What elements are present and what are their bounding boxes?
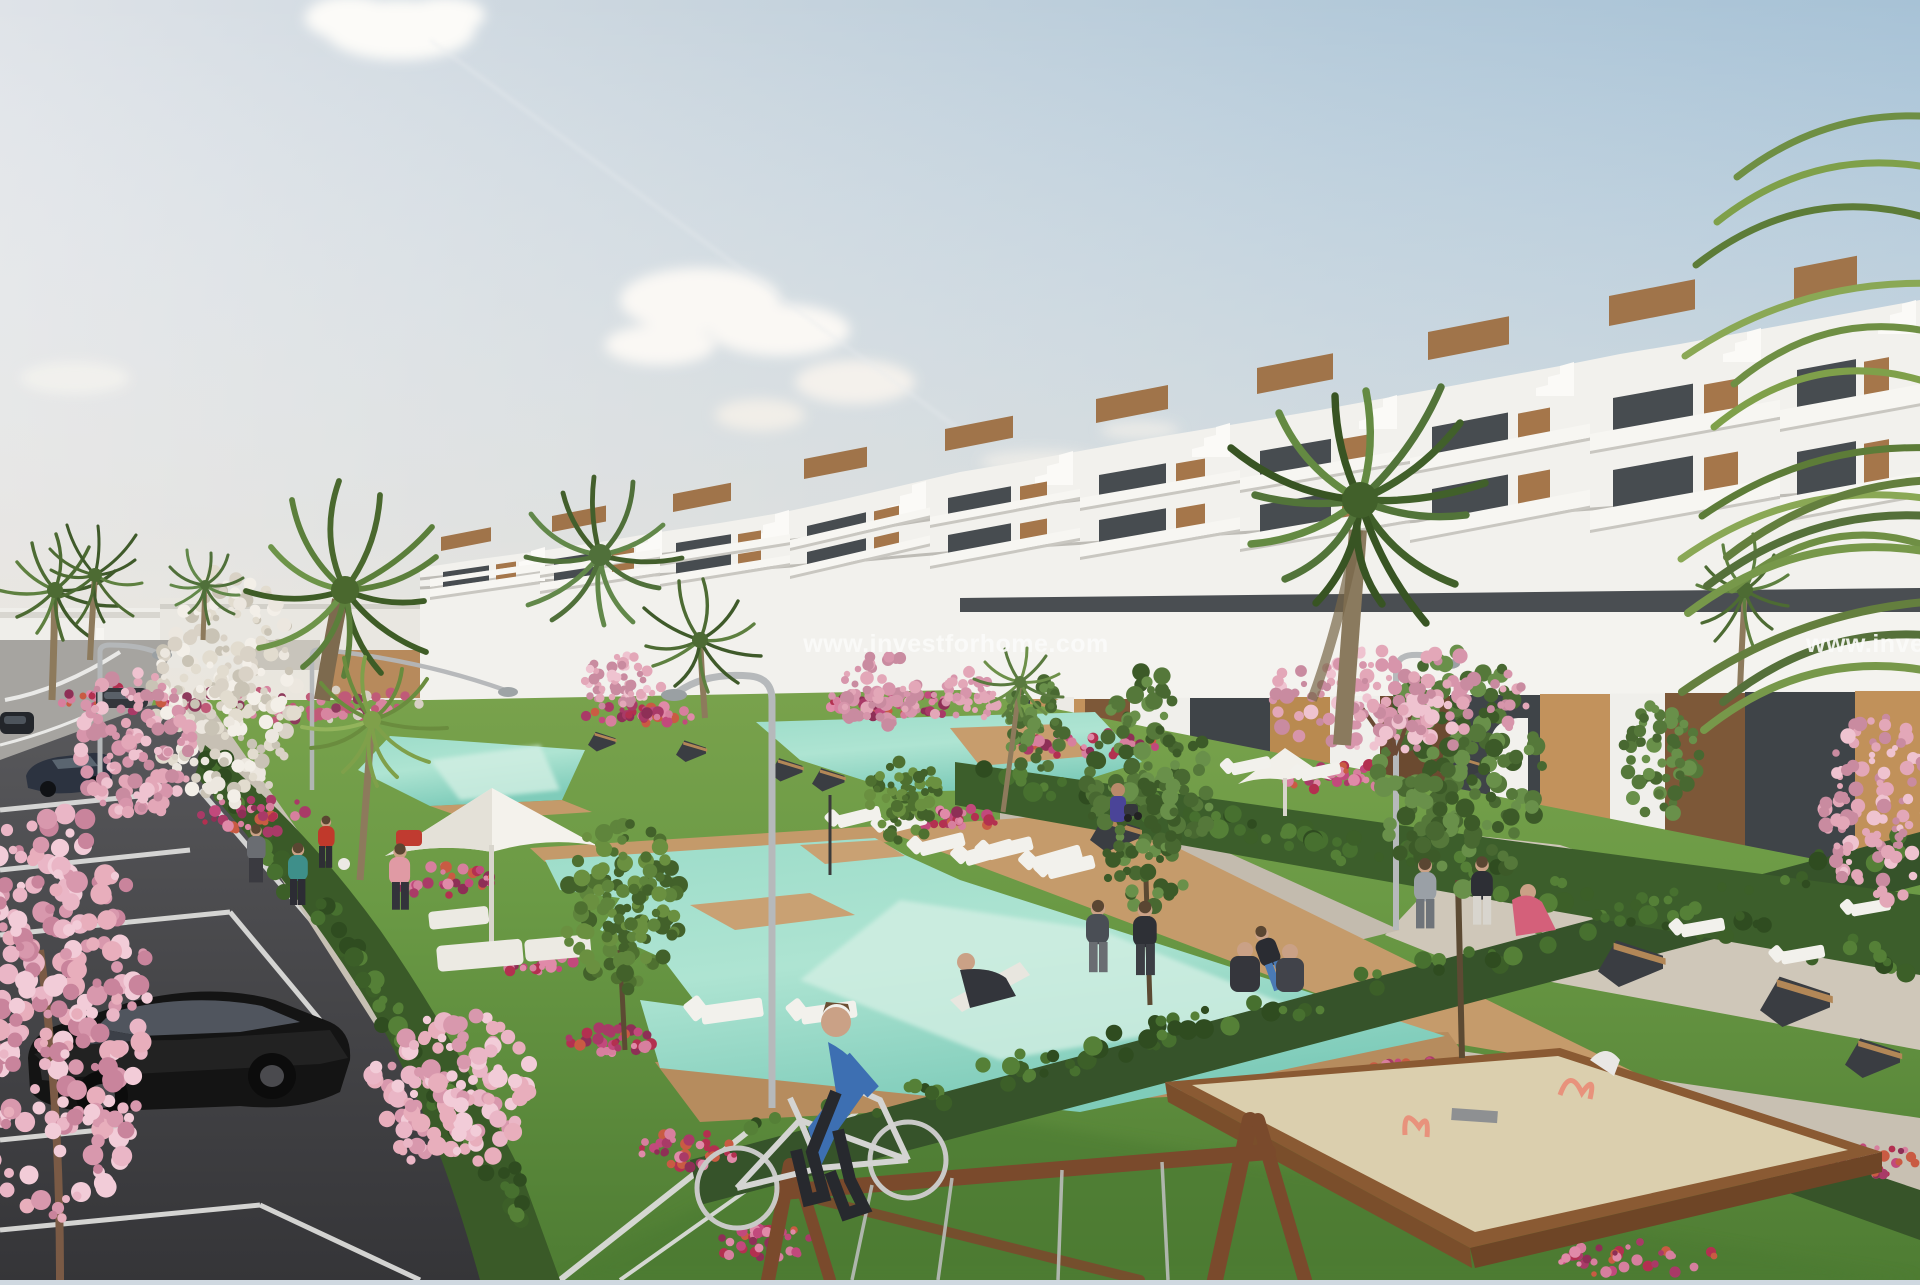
svg-text:www.investforhome.com: www.investforhome.com xyxy=(802,630,1108,658)
svg-text:www.investforh: www.investforh xyxy=(1805,630,1920,658)
